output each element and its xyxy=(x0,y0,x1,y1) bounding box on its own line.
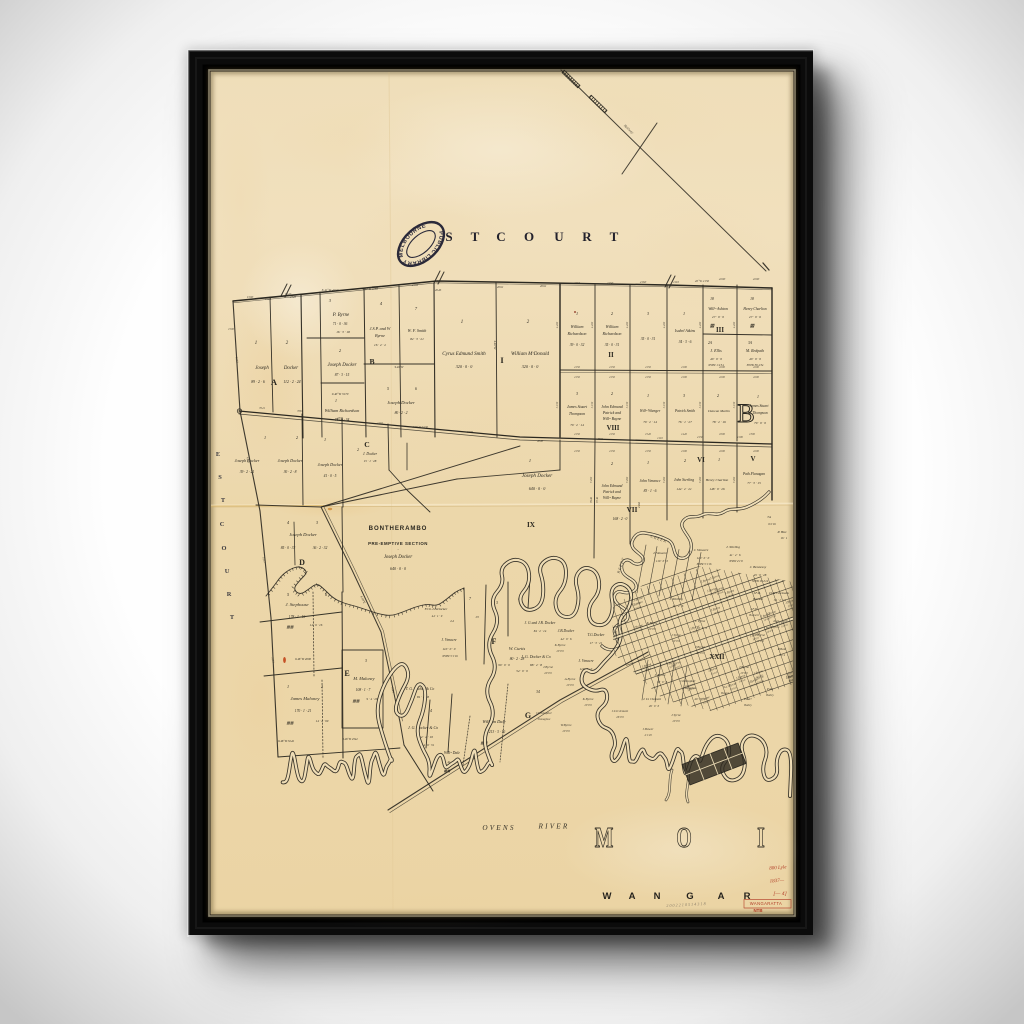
svg-text:4.402: 4.402 xyxy=(590,321,594,328)
svg-text:Jack: Jack xyxy=(773,619,780,623)
svg-text:1: 1 xyxy=(647,393,649,398)
svg-text:77.10: 77.10 xyxy=(596,496,599,503)
svg-text:640 · 0 · 0: 640 · 0 · 0 xyxy=(529,486,546,491)
svg-text:E: E xyxy=(216,451,220,458)
svg-text:T: T xyxy=(610,229,619,244)
svg-text:▦▦: ▦▦ xyxy=(353,699,360,703)
svg-text:54 · 2 · 10: 54 · 2 · 10 xyxy=(419,735,433,739)
svg-text:44 · 1 · 9: 44 · 1 · 9 xyxy=(432,614,443,618)
svg-text:III: III xyxy=(716,327,724,334)
svg-text:RIVER: RIVER xyxy=(538,823,570,831)
svg-text:J.Byrne: J.Byrne xyxy=(739,665,750,669)
svg-text:William: William xyxy=(606,324,619,329)
svg-text:Bonnett: Bonnett xyxy=(749,613,759,617)
svg-text:3: 3 xyxy=(647,311,649,316)
svg-text:3.150: 3.150 xyxy=(590,401,594,408)
svg-text:1110: 1110 xyxy=(673,280,679,284)
svg-text:A.Byrne: A.Byrne xyxy=(564,677,576,681)
svg-text:3.150: 3.150 xyxy=(662,401,666,408)
svg-text:35 · 0 · 31: 35 · 0 · 31 xyxy=(605,343,620,347)
svg-text:41 · 2 · 6: 41 · 2 · 6 xyxy=(729,553,740,557)
svg-text:10·0·0: 10·0·0 xyxy=(556,649,564,653)
svg-text:2200: 2200 xyxy=(753,375,759,379)
svg-text:Path.Flanagan: Path.Flanagan xyxy=(742,472,765,476)
svg-text:I: I xyxy=(757,822,765,854)
svg-text:2150: 2150 xyxy=(645,375,651,379)
svg-text:VIII: VIII xyxy=(607,425,620,432)
svg-text:36 · 2 · 32: 36 · 2 · 32 xyxy=(313,546,328,550)
svg-text:N50W 4·1·8: N50W 4·1·8 xyxy=(728,559,743,563)
svg-text:Joseph Docker: Joseph Docker xyxy=(235,458,260,463)
svg-text:4.402: 4.402 xyxy=(555,321,559,328)
svg-text:J.F.D.: J.F.D. xyxy=(753,591,761,595)
svg-text:4002: 4002 xyxy=(540,284,547,288)
svg-text:Bailey: Bailey xyxy=(766,693,774,697)
svg-text:2160: 2160 xyxy=(640,280,647,284)
svg-text:Willᵐ Bayne: Willᵐ Bayne xyxy=(603,417,622,421)
svg-text:3: 3 xyxy=(496,601,498,605)
svg-text:D.MᶜCormack: D.MᶜCormack xyxy=(768,591,789,595)
svg-text:E: E xyxy=(344,669,349,678)
svg-text:Joseph Docker: Joseph Docker xyxy=(289,533,317,538)
svg-text:10·0·0: 10·0·0 xyxy=(648,627,656,631)
svg-text:William Richardson: William Richardson xyxy=(325,408,360,413)
svg-text:213 · 3 · 10: 213 · 3 · 10 xyxy=(489,730,506,734)
svg-text:A: A xyxy=(271,377,278,387)
svg-text:320 · 0 · 0: 320 · 0 · 0 xyxy=(456,364,473,369)
svg-text:2200: 2200 xyxy=(719,277,726,281)
svg-text:T: T xyxy=(230,614,235,621)
svg-text:3.150: 3.150 xyxy=(698,401,702,408)
svg-text:2150: 2150 xyxy=(574,449,580,453)
svg-text:K.Byrne: K.Byrne xyxy=(582,697,594,701)
svg-text:40ʺW 2150: 40ʺW 2150 xyxy=(695,279,710,283)
svg-text:J.Tyrne: J.Tyrne xyxy=(671,633,681,637)
svg-text:170 · 1 · 21: 170 · 1 · 21 xyxy=(295,709,312,713)
svg-text:2: 2 xyxy=(339,348,341,353)
svg-text:C: C xyxy=(364,440,369,449)
svg-text:Richardson: Richardson xyxy=(602,331,622,336)
svg-text:39 · 2 · 21: 39 · 2 · 21 xyxy=(240,470,255,474)
svg-text:Christopher: Christopher xyxy=(536,711,553,715)
svg-text:2: 2 xyxy=(611,311,613,316)
svg-text:3.150: 3.150 xyxy=(555,401,559,408)
svg-text:45 · 0 · 28: 45 · 0 · 28 xyxy=(754,573,767,577)
svg-text:1110: 1110 xyxy=(657,436,663,440)
svg-text:10·0·0: 10·0·0 xyxy=(584,703,592,707)
svg-text:Paul?: Paul? xyxy=(743,697,752,701)
svg-text:320 · 0 · 0: 320 · 0 · 0 xyxy=(522,364,539,369)
svg-text:J.Tyrne: J.Tyrne xyxy=(671,713,681,717)
svg-text:1520: 1520 xyxy=(290,295,296,299)
svg-text:27 · 0 · 6: 27 · 0 · 6 xyxy=(749,315,761,319)
svg-text:1: 1 xyxy=(255,341,257,346)
svg-text:3: 3 xyxy=(365,659,367,663)
svg-text:4.46ʺW: 4.46ʺW xyxy=(493,341,497,350)
svg-text:44 · 0 · 6: 44 · 0 · 6 xyxy=(560,637,571,641)
svg-text:4.402: 4.402 xyxy=(732,321,736,328)
svg-text:17 · 3 · 21: 17 · 3 · 21 xyxy=(590,641,603,645)
svg-text:Donaghue: Donaghue xyxy=(682,686,697,690)
svg-text:1: 1 xyxy=(529,458,531,463)
svg-text:4·1·20: 4·1·20 xyxy=(644,733,652,737)
svg-text:3.2: 3.2 xyxy=(723,685,727,689)
svg-text:OVENS: OVENS xyxy=(482,824,515,832)
svg-text:J. Venacre: J. Venacre xyxy=(441,638,456,642)
svg-text:U: U xyxy=(225,568,230,575)
svg-text:2200: 2200 xyxy=(753,449,759,453)
svg-text:41 · 2 · 6: 41 · 2 · 6 xyxy=(673,604,684,608)
svg-text:3: 3 xyxy=(683,393,685,398)
svg-text:16 · 2 · 2: 16 · 2 · 2 xyxy=(374,343,386,347)
svg-text:·: · xyxy=(397,548,398,553)
svg-text:2150: 2150 xyxy=(645,365,651,369)
svg-text:10 · 0 · 0: 10 · 0 · 0 xyxy=(657,680,668,684)
svg-text:1: 1 xyxy=(335,399,337,403)
svg-text:10·0·0: 10·0·0 xyxy=(562,729,570,733)
svg-text:80 · 2 · 2: 80 · 2 · 2 xyxy=(395,411,408,415)
svg-text:10·0·0: 10·0·0 xyxy=(566,683,574,687)
svg-text:1500: 1500 xyxy=(228,327,234,331)
svg-text:34 · 3 · 6: 34 · 3 · 6 xyxy=(679,340,692,344)
svg-text:IX: IX xyxy=(527,521,536,529)
svg-text:J.Byrne: J.Byrne xyxy=(695,645,706,649)
svg-text:William Dale: William Dale xyxy=(482,719,505,724)
svg-text:XXII: XXII xyxy=(709,654,724,661)
svg-text:2100: 2100 xyxy=(681,375,687,379)
svg-text:Path: Path xyxy=(766,687,774,691)
svg-text:2200: 2200 xyxy=(753,277,760,281)
svg-text:2: 2 xyxy=(611,461,613,466)
svg-text:79 · 2 · 14: 79 · 2 · 14 xyxy=(643,420,657,424)
svg-text:W: W xyxy=(603,891,612,902)
svg-text:20·0·0: 20·0·0 xyxy=(696,651,704,655)
svg-text:W.Byrne: W.Byrne xyxy=(560,723,572,727)
svg-text:89 · 2 · 6: 89 · 2 · 6 xyxy=(251,380,265,384)
svg-text:Thompson: Thompson xyxy=(752,411,767,415)
svg-text:4.30ʺW 3130: 4.30ʺW 3130 xyxy=(412,425,428,429)
svg-text:76 · 1 · 27: 76 · 1 · 27 xyxy=(678,420,692,424)
svg-text:3: 3 xyxy=(316,520,318,525)
svg-text:26 · 0 · 0: 26 · 0 · 0 xyxy=(649,704,660,708)
svg-text:4.402: 4.402 xyxy=(662,321,666,328)
svg-text:4.402: 4.402 xyxy=(625,321,629,328)
svg-text:15 · 1 · 28: 15 · 1 · 28 xyxy=(364,459,377,463)
svg-text:4046: 4046 xyxy=(435,288,442,292)
svg-text:PRE-EMPTIVE SECTION: PRE-EMPTIVE SECTION xyxy=(368,541,428,546)
svg-text:Joseph: Joseph xyxy=(255,366,269,371)
svg-text:9.42ʺW 4150: 9.42ʺW 4150 xyxy=(362,287,378,291)
svg-text:1110: 1110 xyxy=(377,421,383,425)
svg-text:[— 4]: [— 4] xyxy=(773,890,787,897)
svg-text:J. D. Clement: J. D. Clement xyxy=(643,697,661,701)
svg-text:J.S.P. and W: J.S.P. and W xyxy=(370,326,391,331)
svg-text:2.402: 2.402 xyxy=(638,501,641,508)
svg-text:6·2·16: 6·2·16 xyxy=(768,522,776,526)
svg-text:W. Curtis: W. Curtis xyxy=(509,646,526,651)
svg-text:J. Venacre: J. Venacre xyxy=(694,548,709,552)
svg-text:J.F.D.: J.F.D. xyxy=(750,607,758,611)
svg-text:N: N xyxy=(654,891,661,902)
svg-text:2200: 2200 xyxy=(753,365,759,369)
svg-text:N50W 5·1·16: N50W 5·1·16 xyxy=(696,562,712,566)
svg-text:G: G xyxy=(686,891,693,902)
svg-text:2150: 2150 xyxy=(645,449,651,453)
svg-text:W. F. Smith: W. F. Smith xyxy=(408,328,427,333)
svg-text:Joseph Docker: Joseph Docker xyxy=(318,462,343,467)
svg-text:1510: 1510 xyxy=(265,297,271,301)
svg-text:J. G. Docker & Co: J. G. Docker & Co xyxy=(521,655,550,659)
svg-text:148 · 0 · 26: 148 · 0 · 26 xyxy=(709,487,725,491)
svg-text:1: 1 xyxy=(576,311,578,316)
svg-text:2150: 2150 xyxy=(609,432,615,436)
svg-text:2: 2 xyxy=(684,458,686,463)
svg-text:10 · 0 · 0: 10 · 0 · 0 xyxy=(697,626,708,630)
svg-text:168 · 2 · 0: 168 · 2 · 0 xyxy=(613,517,628,521)
svg-text:34: 34 xyxy=(536,690,540,694)
svg-text:5: 5 xyxy=(287,592,289,597)
svg-text:1: 1 xyxy=(461,320,463,325)
svg-text:J. Bennessy: J. Bennessy xyxy=(750,565,767,569)
svg-text:WANGARATTA: WANGARATTA xyxy=(750,901,782,906)
svg-text:A: A xyxy=(629,891,636,902)
svg-text:J. Tyrne: J. Tyrne xyxy=(695,619,706,623)
svg-text:Willᵐ Wienger: Willᵐ Wienger xyxy=(640,409,661,413)
svg-text:7.202: 7.202 xyxy=(698,476,702,483)
svg-text:N50W 16·4·14: N50W 16·4·14 xyxy=(751,579,769,583)
svg-text:P. Hav: P. Hav xyxy=(776,530,787,534)
svg-text:34 · 1 · 21: 34 · 1 · 21 xyxy=(774,598,787,602)
svg-text:Joseph Docker: Joseph Docker xyxy=(384,555,413,560)
svg-text:O: O xyxy=(524,229,534,244)
svg-text:2150: 2150 xyxy=(607,281,614,285)
svg-text:J. Stirling: J. Stirling xyxy=(726,545,740,549)
svg-text:O: O xyxy=(676,822,691,854)
svg-text:James Stuart: James Stuart xyxy=(567,405,588,409)
svg-text:J.Byrne: J.Byrne xyxy=(755,633,766,637)
svg-text:C: C xyxy=(496,229,505,244)
svg-text:40 · 0 · 0: 40 · 0 · 0 xyxy=(710,357,722,361)
svg-text:110 · 0 · 0: 110 · 0 · 0 xyxy=(697,556,710,560)
svg-text:10·0·0: 10·0·0 xyxy=(672,639,680,643)
svg-text:178 · 1 · 10: 178 · 1 · 10 xyxy=(289,615,306,619)
svg-text:Donaghue: Donaghue xyxy=(537,717,551,721)
svg-text:Henry Charlton: Henry Charlton xyxy=(705,478,729,482)
svg-text:Bower: Bower xyxy=(721,691,730,695)
svg-text:7.202: 7.202 xyxy=(625,476,629,483)
svg-text:U: U xyxy=(554,229,564,244)
svg-text:C: C xyxy=(220,521,225,528)
svg-text:2150: 2150 xyxy=(609,375,615,379)
svg-text:Richardson: Richardson xyxy=(567,331,587,336)
svg-text:Docker: Docker xyxy=(283,366,298,371)
svg-text:14 · 2 · 99: 14 · 2 · 99 xyxy=(316,719,329,723)
svg-text:Bennett: Bennett xyxy=(753,597,763,601)
svg-text:Joseph Docker: Joseph Docker xyxy=(387,401,415,406)
svg-text:M: M xyxy=(595,822,614,854)
svg-text:90 · 0 · 0: 90 · 0 · 0 xyxy=(498,663,510,667)
svg-text:4: 4 xyxy=(430,709,432,713)
svg-text:4002: 4002 xyxy=(597,437,604,441)
svg-text:13: 13 xyxy=(475,615,479,619)
svg-text:Patrick and: Patrick and xyxy=(602,411,621,415)
svg-text:VI: VI xyxy=(697,456,705,464)
svg-text:3: 3 xyxy=(576,391,578,396)
svg-text:78 · 2 · 16: 78 · 2 · 16 xyxy=(712,420,726,424)
svg-text:2: 2 xyxy=(296,435,298,440)
svg-text:8.42ʺW 4150: 8.42ʺW 4150 xyxy=(322,288,339,292)
svg-text:79.20: 79.20 xyxy=(590,496,593,503)
svg-text:J. Stirling: J. Stirling xyxy=(669,597,683,601)
svg-text:10·0·0: 10·0·0 xyxy=(756,639,764,643)
svg-text:P. Byrne: P. Byrne xyxy=(332,313,350,318)
svg-text:1: 1 xyxy=(757,395,759,399)
svg-text:10·0·0: 10·0·0 xyxy=(740,671,748,675)
svg-text:Joseph Docker: Joseph Docker xyxy=(278,458,303,463)
svg-text:R: R xyxy=(227,591,232,598)
svg-text:2150: 2150 xyxy=(609,449,615,453)
svg-text:T.G.Docker: T.G.Docker xyxy=(588,633,606,637)
svg-text:8·2·4: 8·2·4 xyxy=(779,653,786,657)
svg-text:9 · 4 · 26: 9 · 4 · 26 xyxy=(366,697,377,701)
svg-text:7041: 7041 xyxy=(259,406,266,410)
svg-text:T. G. Docker & Co: T. G. Docker & Co xyxy=(406,687,435,691)
svg-text:110 · 0 · 0: 110 · 0 · 0 xyxy=(656,559,668,563)
svg-text:7.202: 7.202 xyxy=(589,476,593,483)
svg-text:2150: 2150 xyxy=(574,432,580,436)
svg-text:71 · 0 · 36: 71 · 0 · 36 xyxy=(333,322,348,326)
svg-text:William MᶜDonald: William MᶜDonald xyxy=(511,351,550,357)
svg-text:1540: 1540 xyxy=(645,432,651,436)
svg-text:9.40ʺW: 9.40ʺW xyxy=(395,365,404,369)
svg-text:4.402: 4.402 xyxy=(698,321,702,328)
svg-text:2: 2 xyxy=(321,684,323,689)
svg-text:1: 1 xyxy=(683,311,685,316)
svg-text:Willᵐ Dale: Willᵐ Dale xyxy=(444,751,460,755)
svg-text:F.Ch.J.B.Docker: F.Ch.J.B.Docker xyxy=(424,607,448,611)
svg-text:T: T xyxy=(221,497,226,504)
svg-text:77 · 3 · 15: 77 · 3 · 15 xyxy=(747,481,761,485)
svg-text:J. Docker: J. Docker xyxy=(363,452,378,456)
svg-text:7.202: 7.202 xyxy=(732,476,736,483)
svg-text:M. Maloney: M. Maloney xyxy=(352,676,374,681)
svg-text:4: 4 xyxy=(287,520,289,525)
svg-text:26·0·0: 26·0·0 xyxy=(616,715,624,719)
svg-text:Thompson: Thompson xyxy=(569,412,585,416)
svg-text:2: 2 xyxy=(717,393,719,398)
svg-text:1837—: 1837— xyxy=(770,878,785,884)
svg-text:John Sterling: John Sterling xyxy=(674,478,694,482)
svg-text:T: T xyxy=(471,229,480,244)
svg-text:P.Bain: P.Bain xyxy=(777,647,787,651)
svg-text:9.46ʺW 4000: 9.46ʺW 4000 xyxy=(295,657,311,661)
svg-text:A: A xyxy=(718,891,725,902)
svg-text:2102: 2102 xyxy=(412,283,419,287)
svg-text:James Maloney: James Maloney xyxy=(291,697,321,702)
svg-text:S: S xyxy=(218,474,222,481)
svg-text:▦▦: ▦▦ xyxy=(287,625,294,629)
svg-text:J.Bower: J.Bower xyxy=(643,727,655,731)
svg-text:B: B xyxy=(737,399,754,428)
svg-text:II: II xyxy=(608,351,614,359)
svg-text:1110: 1110 xyxy=(574,281,580,285)
svg-text:84 · 2 · 14: 84 · 2 · 14 xyxy=(534,629,547,633)
svg-text:7.202: 7.202 xyxy=(662,476,666,483)
svg-text:2150: 2150 xyxy=(697,435,704,439)
svg-text:4002: 4002 xyxy=(497,285,504,289)
svg-text:2200: 2200 xyxy=(719,365,725,369)
svg-text:J. Stephouse: J. Stephouse xyxy=(285,603,308,608)
svg-text:John Edmund: John Edmund xyxy=(601,405,623,409)
svg-text:William: William xyxy=(571,324,584,329)
svg-text:9.46ʺW 2342: 9.46ʺW 2342 xyxy=(342,737,358,741)
svg-text:Christopher: Christopher xyxy=(680,679,696,683)
svg-text:Patrick Smith: Patrick Smith xyxy=(674,409,695,413)
svg-text:1500: 1500 xyxy=(247,295,254,299)
svg-text:John Venance: John Venance xyxy=(640,479,661,483)
svg-text:2200: 2200 xyxy=(719,375,725,379)
svg-text:640 · 0 · 0: 640 · 0 · 0 xyxy=(390,566,406,571)
svg-text:1440: 1440 xyxy=(681,432,687,436)
svg-text:Isabel Atkins: Isabel Atkins xyxy=(674,329,696,333)
svg-text:2100: 2100 xyxy=(681,365,687,369)
svg-text:9.46ʺW 3242: 9.46ʺW 3242 xyxy=(278,739,294,743)
svg-text:79 · 2 · 14: 79 · 2 · 14 xyxy=(570,423,584,427)
svg-text:J. Ellis: J. Ellis xyxy=(710,348,722,353)
svg-text:1000: 1000 xyxy=(719,432,725,436)
svg-text:5: 5 xyxy=(387,387,389,391)
svg-text:M. Redpath: M. Redpath xyxy=(745,349,764,353)
svg-text:27 · 0 · 0: 27 · 0 · 0 xyxy=(712,315,724,319)
svg-text:Willᵐ Bayne: Willᵐ Bayne xyxy=(603,496,621,500)
svg-text:John Edmund: John Edmund xyxy=(602,484,623,488)
svg-text:1100: 1100 xyxy=(737,435,743,439)
svg-text:112 · 2 · 24: 112 · 2 · 24 xyxy=(283,380,300,384)
svg-text:D: D xyxy=(299,558,305,567)
svg-text:NTB: NTB xyxy=(754,908,763,913)
svg-text:K.Byrne: K.Byrne xyxy=(554,643,566,647)
svg-text:108 · 1 · 7: 108 · 1 · 7 xyxy=(356,688,371,692)
svg-text:1: 1 xyxy=(324,437,326,442)
svg-text:J. Byrne: J. Byrne xyxy=(655,673,666,677)
svg-text:9.40ʺW 3170: 9.40ʺW 3170 xyxy=(332,392,349,396)
svg-text:BONTHERAMBO: BONTHERAMBO xyxy=(369,525,428,532)
svg-text:40 · 0 · 0: 40 · 0 · 0 xyxy=(694,697,706,701)
svg-text:O: O xyxy=(222,545,227,552)
svg-text:3.150: 3.150 xyxy=(625,401,629,408)
svg-text:J. G. Docker & Co: J. G. Docker & Co xyxy=(408,725,438,730)
svg-text:10·0·0: 10·0·0 xyxy=(672,719,680,723)
svg-text:54 · 0 · 0: 54 · 0 · 0 xyxy=(516,669,528,673)
svg-text:Tyrne: Tyrne xyxy=(773,625,781,629)
svg-text:B: B xyxy=(369,357,374,366)
svg-text:20·0·0: 20·0·0 xyxy=(544,671,552,675)
svg-text:J. Venacre: J. Venacre xyxy=(578,659,593,663)
svg-text:16 · 3 · 18: 16 · 3 · 18 xyxy=(336,330,350,334)
svg-text:1: 1 xyxy=(718,457,720,462)
svg-text:2100: 2100 xyxy=(681,449,687,453)
svg-text:40 · 0 · 0: 40 · 0 · 0 xyxy=(749,357,761,361)
svg-text:1: 1 xyxy=(264,435,266,440)
svg-text:Joseph Docker: Joseph Docker xyxy=(327,363,356,368)
svg-text:79 · 0 · 0: 79 · 0 · 0 xyxy=(754,421,766,425)
svg-text:110 · 0 · 0: 110 · 0 · 0 xyxy=(443,647,456,651)
svg-text:VII: VII xyxy=(627,506,638,514)
svg-text:Patrick and: Patrick and xyxy=(602,490,621,494)
svg-text:2200: 2200 xyxy=(719,449,725,453)
svg-text:35 · 0 · 31: 35 · 0 · 31 xyxy=(641,337,656,341)
svg-text:18: 18 xyxy=(750,297,754,301)
